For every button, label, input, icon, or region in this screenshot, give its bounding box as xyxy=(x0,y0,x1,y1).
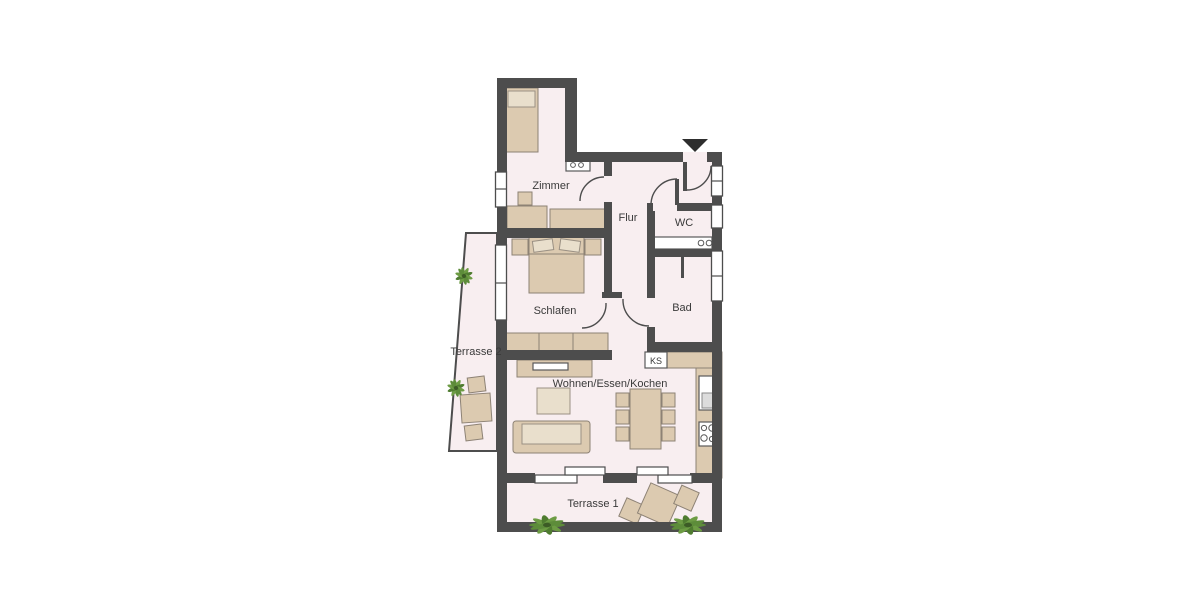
nightstand-right xyxy=(585,239,601,255)
armchair xyxy=(537,388,570,414)
wall-zimmer-flur-upper xyxy=(604,162,612,176)
terrace-2-table xyxy=(460,393,492,423)
dining-set xyxy=(616,389,675,449)
window-entry xyxy=(712,166,723,196)
wall-terrace-sep-3 xyxy=(690,473,722,483)
window-wc xyxy=(712,205,723,228)
zimmer-desk-chair xyxy=(518,192,532,205)
wall-wc-top-right xyxy=(677,203,712,211)
room-label-wohnen: Wohnen/Essen/Kochen xyxy=(553,378,668,390)
dining-chair xyxy=(662,393,675,407)
window-zimmer xyxy=(496,172,507,207)
room-label-zimmer: Zimmer xyxy=(532,180,570,192)
dining-chair xyxy=(616,410,629,424)
room-label-terrasse2: Terrasse 2 xyxy=(450,346,501,358)
bed-pillow-left xyxy=(532,239,553,253)
window-bad xyxy=(712,251,723,301)
room-label-flur: Flur xyxy=(619,212,638,224)
zimmer-side-table xyxy=(550,209,605,230)
wall-wc-top-left xyxy=(647,203,653,211)
zimmer-bed-pillow xyxy=(508,91,535,107)
tv xyxy=(533,363,568,370)
wall-terrace-sep-1 xyxy=(497,473,535,483)
zimmer-desk xyxy=(507,206,547,229)
terrace-2-chair-bottom xyxy=(464,424,483,441)
window-schlafen xyxy=(496,245,507,320)
room-label-wc: WC xyxy=(675,217,693,229)
wall-wc-bad-sep xyxy=(648,249,712,257)
sliding-panel xyxy=(637,467,668,475)
wall-entry-top xyxy=(565,152,683,162)
wall-zimmer-schlafen xyxy=(497,228,612,238)
wall-bad-south xyxy=(647,342,722,352)
sliding-panel xyxy=(658,475,692,483)
nightstand-left xyxy=(512,239,528,255)
room-label-bad: Bad xyxy=(672,302,692,314)
bed-pillow-right xyxy=(559,239,580,253)
dining-chair xyxy=(662,427,675,441)
terrace-2-chair-top xyxy=(467,376,486,393)
room-label-schlafen: Schlafen xyxy=(534,305,577,317)
dining-chair xyxy=(662,410,675,424)
sliding-panel xyxy=(565,467,605,475)
dining-table xyxy=(630,389,661,449)
floor-plan-canvas: Zimmer Flur WC Schlafen Bad KS Wohnen/Es… xyxy=(0,0,1200,600)
room-label-terrasse1: Terrasse 1 xyxy=(567,498,618,510)
schlafen-wardrobe xyxy=(505,333,608,352)
wall-zimmer-right xyxy=(565,78,577,162)
sliding-panel xyxy=(535,475,577,483)
wall-terrace-sep-2 xyxy=(603,473,637,483)
entrance-arrow-icon xyxy=(682,139,708,152)
wc-washbasin-counter xyxy=(648,237,712,249)
dining-chair xyxy=(616,427,629,441)
wall-schlafen-flur xyxy=(604,202,612,292)
floor-plan-page: Zimmer Flur WC Schlafen Bad KS Wohnen/Es… xyxy=(0,0,1200,600)
room-label-ks: KS xyxy=(650,356,662,366)
wall-corridor-stub xyxy=(602,292,622,298)
sofa-seat xyxy=(522,424,581,444)
wall-schlafen-south xyxy=(497,350,612,360)
dining-chair xyxy=(616,393,629,407)
shower-partition xyxy=(681,257,684,278)
